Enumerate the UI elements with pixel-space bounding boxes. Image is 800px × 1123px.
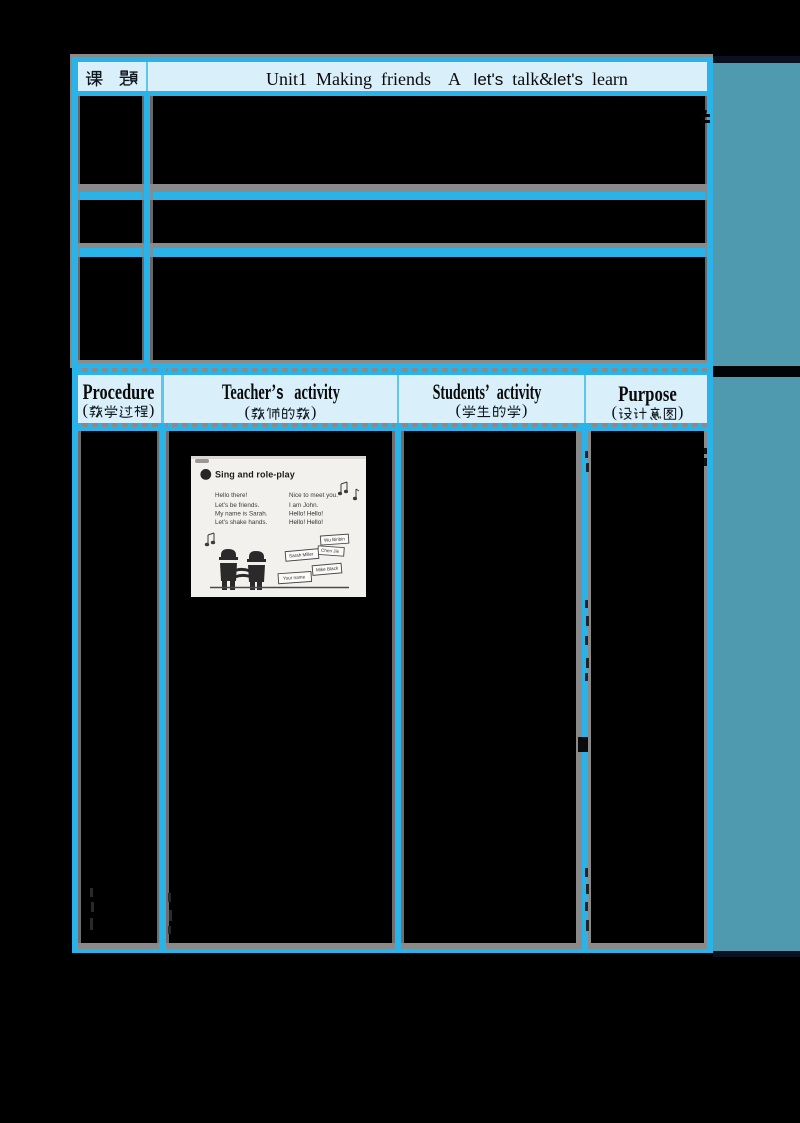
svg-text:Let's shake hands.: Let's shake hands. — [215, 519, 268, 526]
svg-text:I am John.: I am John. — [289, 502, 319, 509]
svg-text:Sing and role-play: Sing and role-play — [215, 470, 295, 480]
svg-text:Let's be friends.: Let's be friends. — [215, 502, 260, 509]
svg-text:Hello! Hello!: Hello! Hello! — [289, 519, 323, 526]
svg-text:Nice to meet you.: Nice to meet you. — [289, 492, 338, 499]
svg-text:My name is Sarah.: My name is Sarah. — [215, 511, 268, 518]
svg-text:Hello! Hello!: Hello! Hello! — [289, 511, 323, 518]
svg-text:Hello there!: Hello there! — [215, 492, 247, 499]
